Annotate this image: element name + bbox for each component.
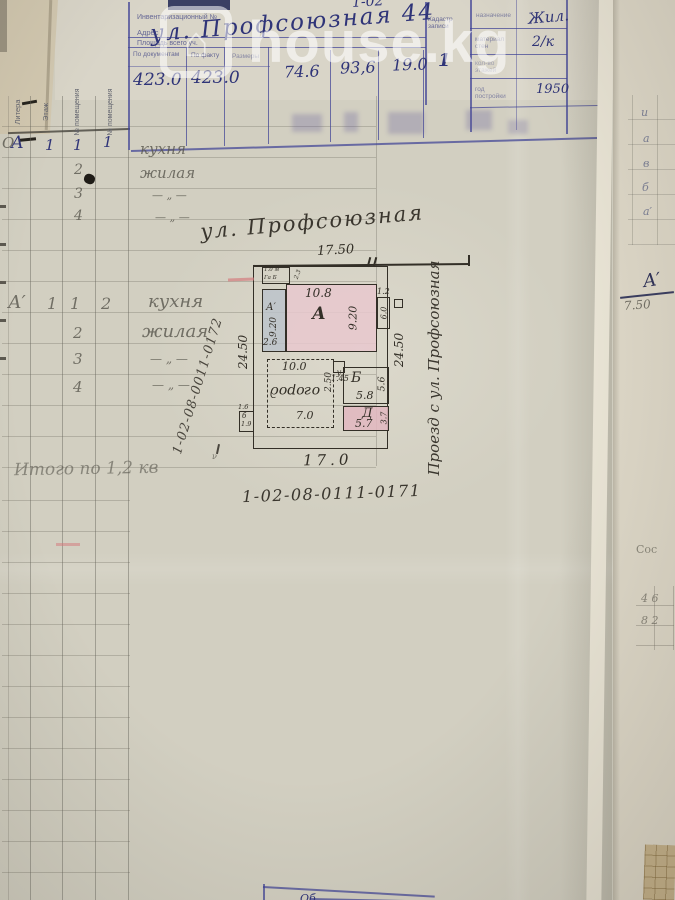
block2-etazh: 1 bbox=[47, 294, 57, 313]
bottom-box-topline bbox=[263, 886, 435, 897]
block2-r3-name: — „ — bbox=[150, 352, 188, 366]
right-row-value: 2/к bbox=[532, 34, 554, 50]
grid-vline bbox=[8, 96, 9, 900]
block2-r4-n1: 4 bbox=[73, 378, 83, 396]
right-annex-width: 1.2 bbox=[377, 287, 390, 296]
strip-faint-text: Сос bbox=[636, 543, 657, 556]
block2-r2-n1: 2 bbox=[73, 324, 83, 342]
stamp-smudge bbox=[344, 112, 358, 132]
strip-grid bbox=[628, 95, 675, 245]
room-b-label: Б bbox=[351, 370, 361, 386]
bottom-box-fragment: Об bbox=[300, 892, 316, 900]
block1-r2-n1: 2 bbox=[74, 162, 83, 178]
gate-post-box bbox=[394, 299, 403, 308]
left-dim: 24.50 bbox=[236, 335, 250, 369]
street-line-tick bbox=[468, 255, 470, 266]
shed-dim: 1.9 bbox=[241, 420, 251, 428]
block2-litera: А′ bbox=[8, 292, 26, 313]
shed-top-dim: 1.6 bbox=[238, 403, 248, 411]
corner-note-1: 1.0 м bbox=[264, 267, 279, 273]
corner-shadow bbox=[0, 0, 7, 52]
col-header-npom2: № помещения bbox=[107, 89, 115, 136]
building-a-width: 10.8 bbox=[305, 286, 332, 300]
strip-row-mark: а′ bbox=[643, 205, 652, 218]
north-mark: ν bbox=[212, 452, 217, 461]
strip-row-mark: и bbox=[641, 106, 648, 119]
strip-grid-vline bbox=[632, 95, 633, 245]
house-icon: ⌂ bbox=[160, 6, 232, 78]
block2-r1-name: кухня bbox=[148, 291, 203, 312]
block2-r1-n2: 2 bbox=[101, 294, 111, 313]
block1-r4-n1: 4 bbox=[74, 208, 83, 224]
watermark: ⌂ house.kg bbox=[160, 6, 511, 78]
house-glyph: ⌂ bbox=[183, 21, 208, 63]
block2-r3-n1: 3 bbox=[73, 350, 83, 368]
building-a-height: 9.20 bbox=[347, 306, 360, 331]
corner-note-2: Га Б bbox=[264, 275, 277, 281]
annex-a1-height: 9.20 bbox=[269, 317, 279, 337]
total-note: Итого по 1,2 кв bbox=[14, 458, 159, 481]
strip-grid-vline bbox=[657, 95, 658, 245]
shed-label: б bbox=[242, 412, 246, 420]
block1-etazh: 1 bbox=[45, 136, 55, 154]
room-d-bottom: 5.7 bbox=[355, 417, 373, 430]
grid-vline bbox=[62, 96, 63, 900]
driveway-label: Проезд с ул. Профсоюзная bbox=[425, 260, 443, 475]
red-check-mark bbox=[56, 543, 80, 546]
right-dim: 24.50 bbox=[392, 333, 406, 367]
stamp-smudge bbox=[466, 110, 492, 130]
strip-grid-mark: 8 2 bbox=[641, 614, 659, 627]
grid-vline bbox=[30, 96, 31, 900]
block1-r4-name: — „ — bbox=[155, 211, 190, 224]
block2-r4-name: — „ — bbox=[152, 378, 190, 392]
checkered-corner bbox=[643, 844, 675, 900]
top-dim: 17.50 bbox=[317, 242, 355, 259]
stamp-smudge bbox=[292, 114, 322, 132]
strip-section-dim: 7.50 bbox=[624, 297, 652, 313]
right-block-hline bbox=[470, 78, 567, 79]
block1-r3-name: — „ — bbox=[152, 189, 187, 202]
form-vline bbox=[128, 2, 130, 150]
grid-vline bbox=[128, 150, 129, 900]
ruled-grid-lower bbox=[2, 470, 130, 900]
form-vline bbox=[516, 0, 517, 130]
right-annex-height: 6.0 bbox=[380, 307, 389, 320]
annex-a1-width: 2.6 bbox=[263, 338, 277, 348]
next-page-strip-shadow bbox=[613, 0, 620, 900]
crease-vertical bbox=[505, 0, 531, 900]
strip-section-label: А′ bbox=[642, 269, 662, 292]
strip-row-mark: б bbox=[642, 181, 649, 194]
strip-row-mark: а bbox=[643, 132, 650, 145]
block2-r1-n1: 1 bbox=[70, 294, 80, 313]
grid-vline bbox=[95, 96, 96, 900]
building-a-label: А bbox=[312, 304, 326, 324]
bottom-dim: 17.0 bbox=[303, 451, 353, 470]
block1-r2-name: жилая bbox=[140, 164, 195, 182]
right-row-label: год постройки bbox=[475, 86, 515, 101]
garden-top-dim: 10.0 bbox=[282, 360, 307, 373]
garden-bottom-dim: 7.0 bbox=[296, 409, 314, 422]
garden-label: огород bbox=[270, 383, 320, 399]
col-header-etazh: Этаж bbox=[42, 103, 50, 121]
annex-a1-label: А′ bbox=[266, 302, 276, 313]
block1-r1-n2: 1 bbox=[103, 133, 113, 151]
strip-row-mark: в bbox=[643, 157, 649, 170]
block1-litera: А bbox=[11, 133, 24, 153]
block1-r1-n1: 1 bbox=[73, 136, 83, 154]
room-b-bottom: 5.8 bbox=[356, 389, 374, 402]
col-header-npom: № помещения bbox=[74, 89, 82, 136]
block1-r1-name: кухня bbox=[140, 140, 186, 158]
stamp-smudge bbox=[508, 120, 528, 134]
room-d-side: 3.7 bbox=[380, 412, 389, 425]
stamp-smudge bbox=[388, 112, 424, 134]
room-b-side: 5.6 bbox=[377, 376, 388, 391]
document-photo: O 1-02 Инвентаризационный № Адрес bbox=[0, 0, 675, 900]
block2-r2-name: жилая bbox=[142, 321, 208, 342]
strip-grid-mark: 4 6 bbox=[641, 592, 659, 605]
block1-r3-n1: 3 bbox=[74, 186, 83, 202]
col-header-litera: Литера bbox=[14, 100, 22, 125]
watermark-text: house.kg bbox=[248, 9, 511, 76]
